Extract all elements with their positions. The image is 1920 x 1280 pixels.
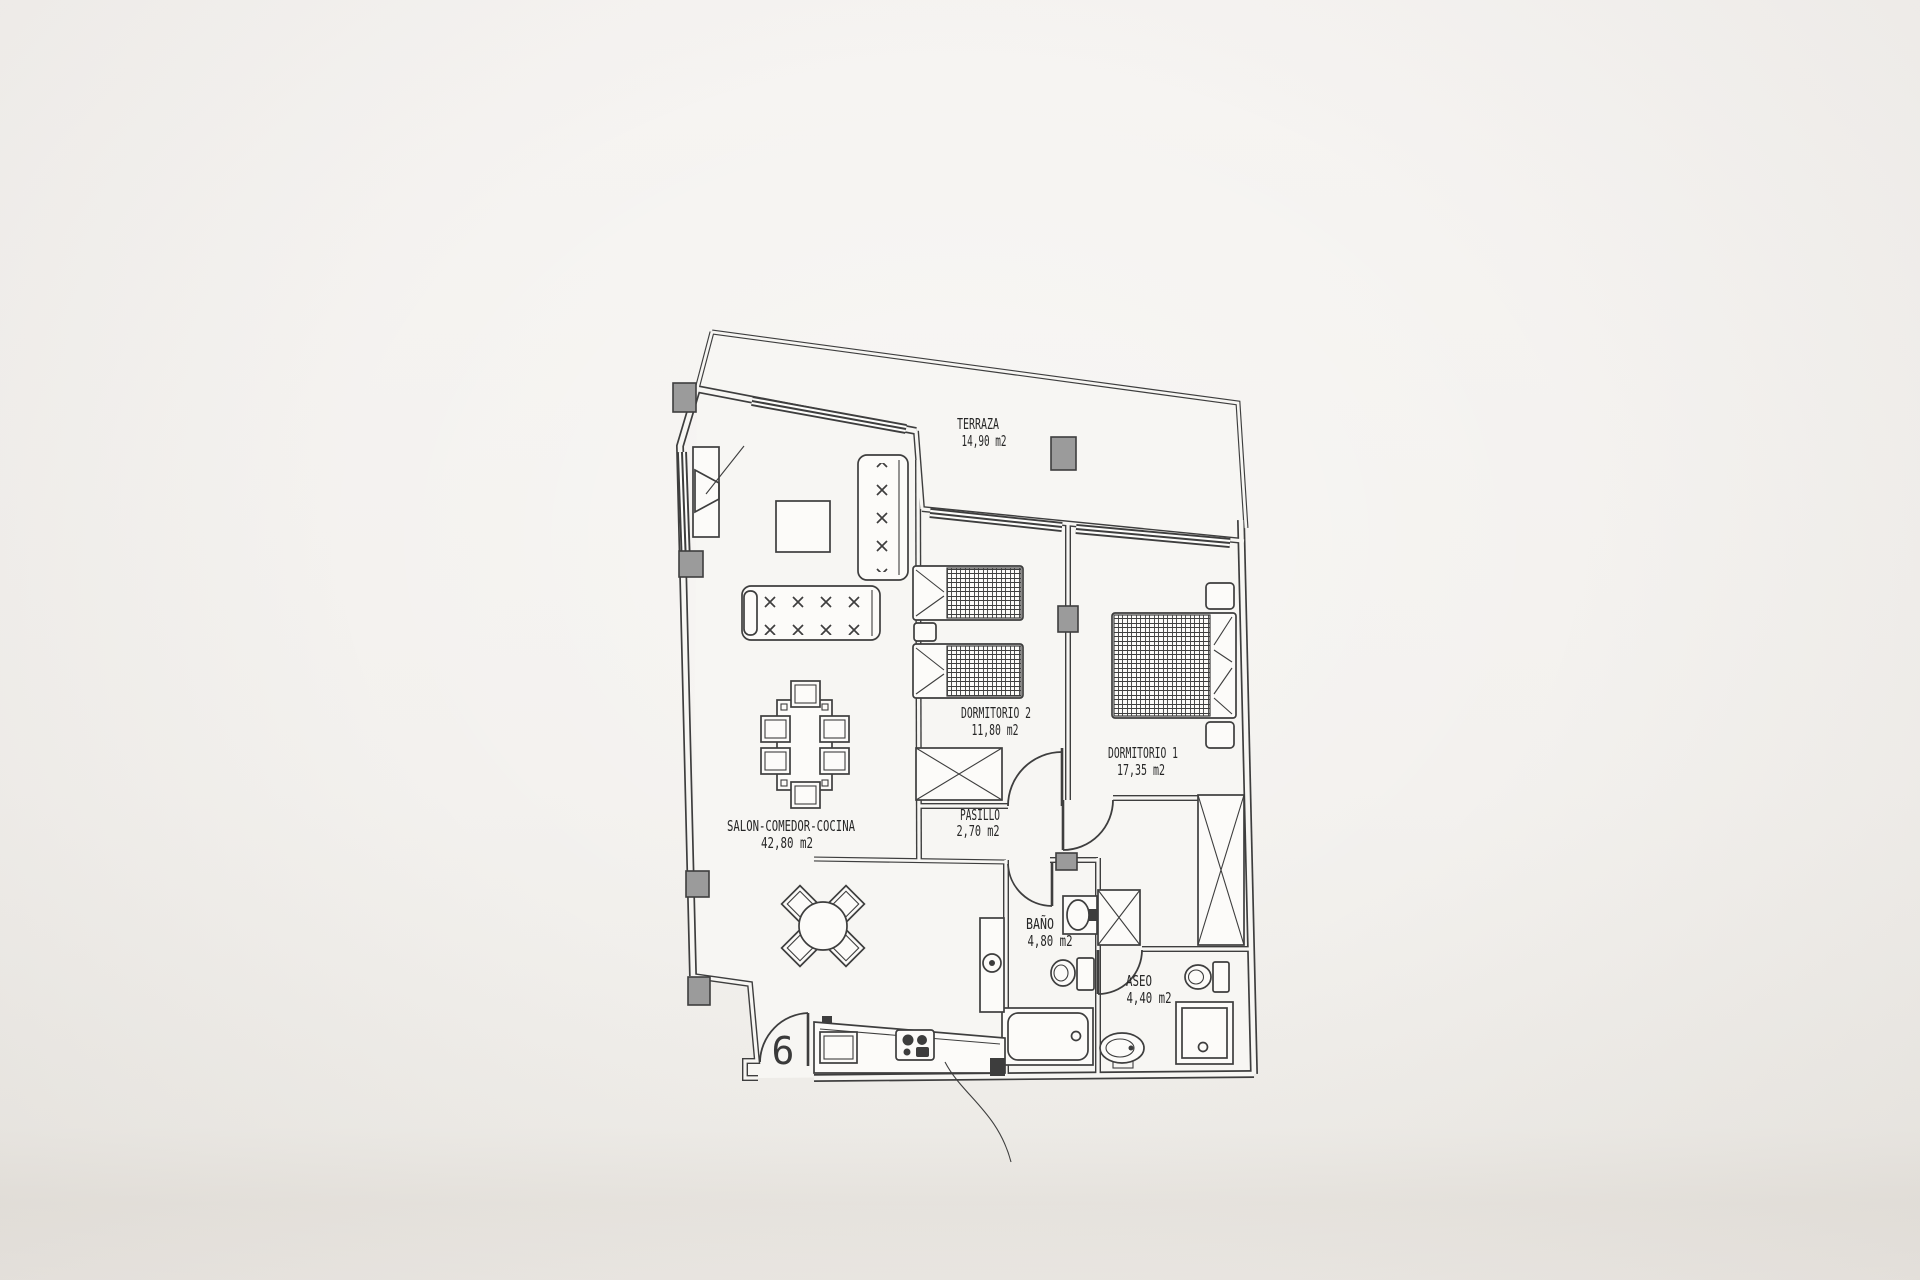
salon-side-window [682, 452, 686, 564]
column [1058, 606, 1078, 632]
closet-dormitorio-2 [916, 748, 1002, 800]
column [688, 977, 710, 1005]
sofa-vertical [858, 455, 908, 580]
unit-number: 6 [772, 1029, 795, 1073]
room-area-dormitorio-2: 11,80 m2 [972, 721, 1019, 739]
column [679, 551, 703, 577]
single-bed-2 [913, 644, 1023, 698]
vent-shaft [1098, 890, 1140, 945]
duct [990, 1058, 1005, 1076]
shower-tray [1176, 1002, 1233, 1064]
bathroom-sink [1063, 896, 1097, 934]
column [686, 871, 709, 897]
single-bed-1 [913, 566, 1023, 620]
side-table [776, 501, 830, 552]
room-area-salon: 42,80 m2 [761, 834, 813, 852]
nightstand [914, 623, 936, 641]
nightstand [1206, 583, 1234, 609]
room-label-dormitorio-2: DORMITORIO 2 [961, 704, 1031, 722]
column [1051, 437, 1076, 470]
nightstand [1206, 722, 1234, 748]
cooktop [896, 1030, 934, 1060]
room-label-dormitorio-1: DORMITORIO 1 [1108, 744, 1178, 762]
room-area-terraza: 14,90 m2 [962, 432, 1007, 450]
kitchen-sink [820, 1032, 857, 1063]
column [1056, 853, 1077, 870]
room-area-bano: 4,80 m2 [1028, 932, 1073, 950]
bathtub [1002, 1008, 1093, 1065]
boiler [980, 918, 1004, 1012]
room-label-bano: BAÑO [1026, 914, 1054, 933]
room-label-salon: SALON-COMEDOR-COCINA [727, 817, 855, 835]
room-label-terraza: TERRAZA [957, 415, 999, 433]
room-area-dormitorio-1: 17,35 m2 [1117, 761, 1165, 779]
room-area-aseo: 4,40 m2 [1127, 989, 1172, 1007]
floor-plan: TERRAZA 14,90 m2 DORMITORIO 2 11,80 m2 D… [0, 0, 1920, 1280]
room-area-pasillo: 2,70 m2 [957, 822, 1000, 840]
closet-dormitorio-1 [1198, 795, 1244, 945]
double-bed [1112, 613, 1236, 718]
sofa-horizontal [742, 586, 880, 640]
room-label-aseo: ASEO [1126, 972, 1152, 990]
column [673, 383, 696, 412]
